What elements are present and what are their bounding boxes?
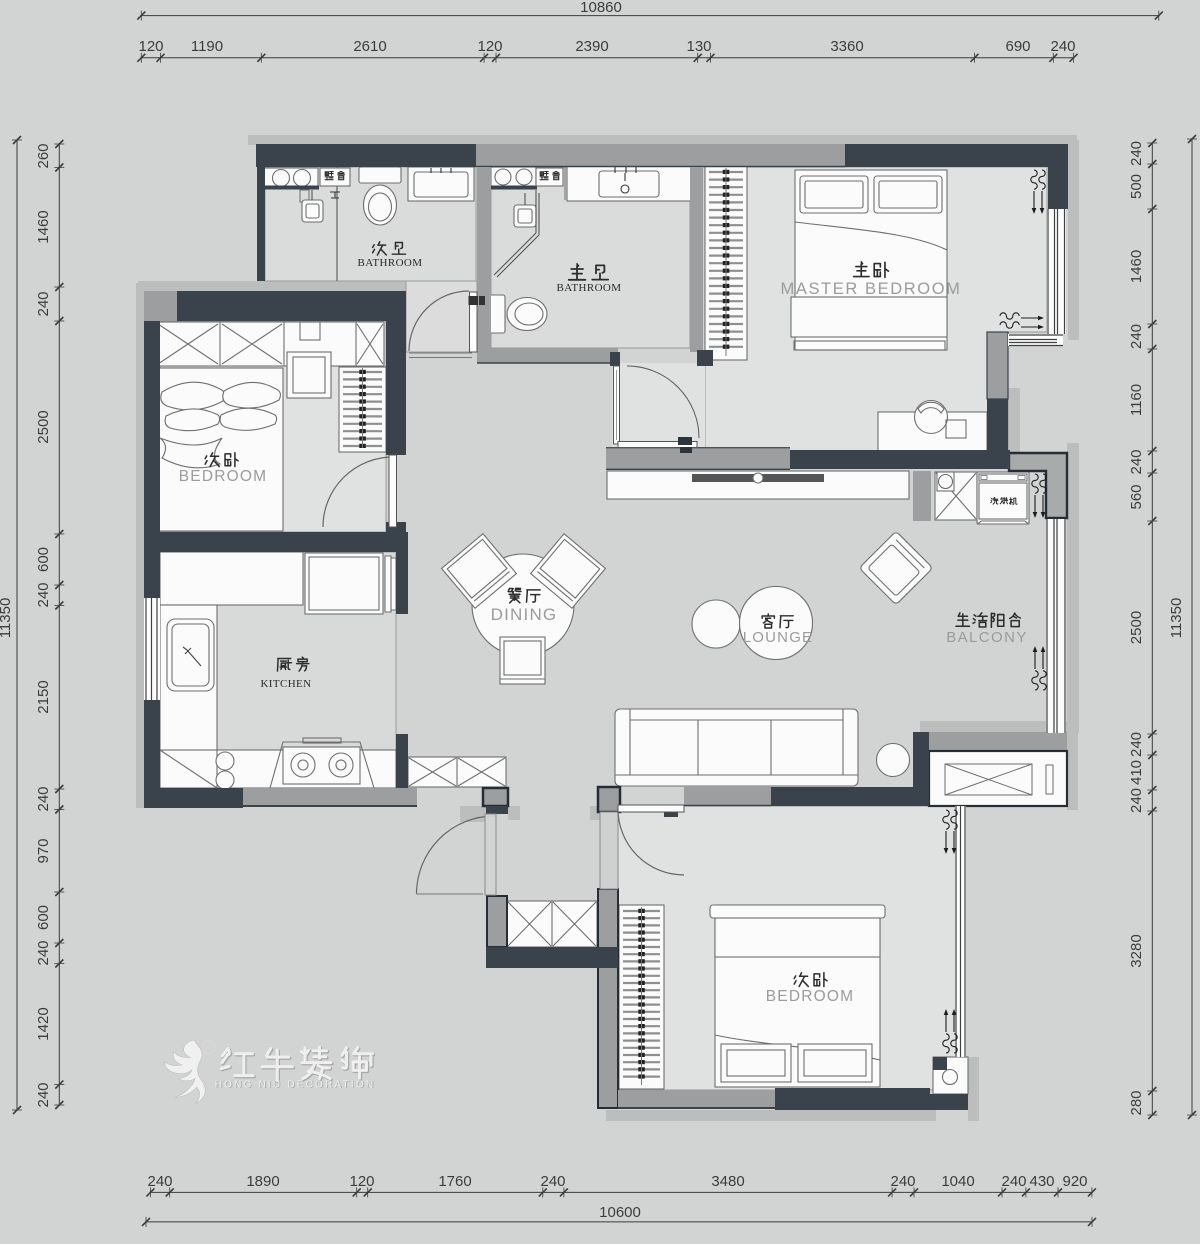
svg-text:1190: 1190 [191, 38, 223, 55]
svg-text:KITCHEN: KITCHEN [260, 678, 311, 690]
svg-text:130: 130 [686, 38, 711, 55]
svg-text:690: 690 [1005, 38, 1030, 55]
svg-text:240: 240 [540, 1173, 565, 1190]
svg-text:240: 240 [35, 582, 52, 607]
svg-text:10860: 10860 [580, 0, 622, 16]
svg-text:1460: 1460 [35, 210, 52, 243]
svg-text:240: 240 [1050, 38, 1075, 55]
svg-text:LOUNGE: LOUNGE [743, 629, 814, 646]
svg-text:10600: 10600 [599, 1204, 641, 1221]
svg-text:DINING: DINING [491, 605, 558, 624]
svg-text:240: 240 [1128, 324, 1145, 349]
svg-text:HONG NIU DECORATION: HONG NIU DECORATION [215, 1079, 376, 1090]
svg-text:3480: 3480 [711, 1173, 744, 1190]
svg-text:240: 240 [1128, 141, 1145, 166]
svg-text:1040: 1040 [941, 1173, 974, 1190]
svg-text:600: 600 [35, 547, 52, 572]
svg-text:970: 970 [35, 838, 52, 863]
svg-text:BATHROOM: BATHROOM [557, 282, 622, 294]
svg-text:240: 240 [35, 786, 52, 811]
svg-text:240: 240 [1128, 449, 1145, 474]
svg-text:120: 120 [477, 38, 502, 55]
svg-text:MASTER BEDROOM: MASTER BEDROOM [781, 280, 962, 298]
svg-text:1160: 1160 [1128, 384, 1145, 416]
svg-text:280: 280 [1128, 1090, 1145, 1115]
svg-text:3360: 3360 [830, 38, 863, 55]
svg-text:600: 600 [35, 905, 52, 930]
svg-text:120: 120 [138, 38, 163, 55]
svg-text:R: R [206, 1043, 213, 1053]
svg-text:3280: 3280 [1128, 934, 1145, 967]
svg-text:1760: 1760 [438, 1173, 471, 1190]
svg-text:410: 410 [1128, 760, 1145, 785]
svg-text:BEDROOM: BEDROOM [179, 468, 268, 485]
svg-text:240: 240 [1128, 732, 1145, 757]
svg-text:1890: 1890 [246, 1173, 279, 1190]
svg-text:11350: 11350 [0, 598, 14, 639]
svg-text:240: 240 [35, 940, 52, 965]
svg-text:1420: 1420 [35, 1007, 52, 1040]
svg-text:BALCONY: BALCONY [946, 629, 1028, 646]
svg-text:2390: 2390 [575, 38, 608, 55]
svg-text:120: 120 [349, 1173, 374, 1190]
svg-text:240: 240 [35, 1082, 52, 1107]
svg-text:1460: 1460 [1128, 250, 1145, 283]
svg-text:2150: 2150 [35, 680, 52, 713]
svg-text:BATHROOM: BATHROOM [358, 257, 423, 269]
svg-text:240: 240 [1128, 788, 1145, 813]
svg-text:240: 240 [890, 1173, 915, 1190]
svg-text:240: 240 [1001, 1173, 1026, 1190]
svg-text:2500: 2500 [1128, 611, 1145, 644]
svg-text:2610: 2610 [353, 38, 386, 55]
svg-text:560: 560 [1128, 484, 1145, 509]
svg-text:430: 430 [1029, 1173, 1054, 1190]
svg-text:240: 240 [147, 1173, 172, 1190]
svg-text:2500: 2500 [35, 410, 52, 443]
svg-text:500: 500 [1128, 174, 1145, 199]
svg-text:260: 260 [35, 143, 52, 168]
svg-text:240: 240 [35, 291, 52, 316]
svg-text:BEDROOM: BEDROOM [766, 988, 855, 1005]
svg-text:11350: 11350 [1168, 598, 1185, 639]
svg-text:920: 920 [1062, 1173, 1087, 1190]
